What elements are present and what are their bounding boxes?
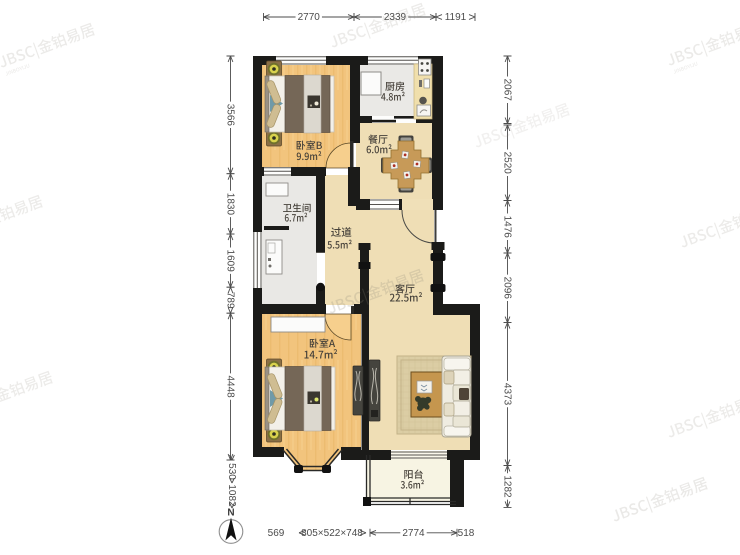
svg-text:1830: 1830 [224, 193, 235, 216]
svg-text:2067: 2067 [501, 79, 512, 102]
svg-text:2770: 2770 [298, 12, 321, 23]
svg-text:2096: 2096 [501, 277, 512, 300]
svg-text:569: 569 [268, 528, 285, 539]
svg-text:4448: 4448 [224, 375, 235, 398]
svg-text:N: N [227, 508, 234, 519]
svg-text:1191: 1191 [445, 12, 467, 23]
svg-text:2520: 2520 [501, 152, 512, 175]
svg-text:1282: 1282 [501, 475, 512, 498]
svg-text:2774: 2774 [402, 528, 425, 539]
svg-text:805×522×748: 805×522×748 [301, 528, 363, 539]
svg-text:3566: 3566 [224, 104, 235, 127]
svg-text:1609: 1609 [224, 250, 235, 273]
svg-text:789: 789 [224, 292, 235, 309]
svg-text:530: 530 [226, 463, 237, 480]
svg-text:1476: 1476 [501, 216, 512, 239]
svg-text:518: 518 [458, 528, 475, 539]
svg-text:1082: 1082 [226, 484, 237, 507]
svg-text:4373: 4373 [501, 383, 512, 406]
